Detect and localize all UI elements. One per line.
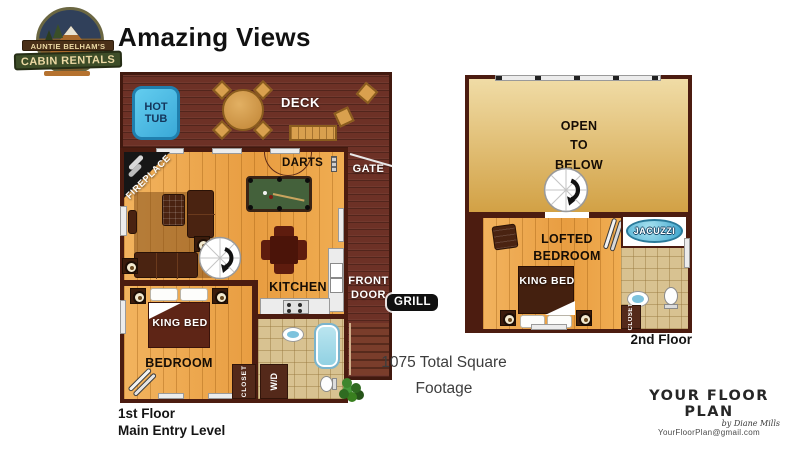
pool-pocket-icon bbox=[248, 205, 253, 210]
cabin-rentals-logo: AUNTIE BELHAM'S CABIN RENTALS bbox=[14, 5, 120, 87]
bed-blanket: KING BED bbox=[148, 302, 210, 348]
nightstand bbox=[576, 310, 592, 326]
deck-right-strip: GATE FRONT DOOR bbox=[345, 147, 392, 380]
spiral-staircase bbox=[198, 236, 242, 280]
logo-snowcap-icon bbox=[64, 26, 78, 35]
side-table bbox=[122, 258, 138, 274]
sofa bbox=[134, 252, 198, 278]
pool-pocket-icon bbox=[277, 177, 282, 182]
front-door-label: FRONT DOOR bbox=[348, 275, 389, 303]
grill-badge: GRILL bbox=[387, 294, 438, 311]
jacuzzi-room: JACUZZI bbox=[621, 215, 688, 248]
closet: CLOSET bbox=[232, 364, 256, 399]
pool-pocket-icon bbox=[248, 178, 253, 183]
interior-wall bbox=[469, 218, 483, 329]
window bbox=[120, 300, 126, 334]
watermark-email: YourFloorPlan@gmail.com bbox=[626, 428, 792, 437]
bathroom-sink-icon bbox=[282, 327, 304, 342]
kitchen-label: KITCHEN bbox=[258, 280, 338, 294]
floor2-caption: 2nd Floor bbox=[588, 332, 692, 347]
wall-tv-icon bbox=[120, 206, 127, 236]
logo-ribbon-icon bbox=[44, 71, 90, 76]
jacuzzi-icon: JACUZZI bbox=[626, 219, 683, 243]
stove-icon bbox=[283, 300, 309, 314]
logo-tree-icon bbox=[53, 24, 63, 38]
total-square-footage: 1075 Total Square Footage bbox=[368, 350, 520, 401]
kitchen-sink-icon bbox=[330, 278, 343, 293]
closet-label: CLOSET bbox=[628, 303, 634, 330]
king-bed: KING BED bbox=[148, 286, 210, 348]
jacuzzi-label: JACUZZI bbox=[634, 226, 676, 236]
king-bed: KING BED bbox=[518, 266, 574, 328]
lofted-bedroom-label: LOFTED BEDROOM bbox=[507, 231, 627, 265]
sofa-cushion-line bbox=[188, 214, 215, 215]
deck-chair bbox=[356, 82, 379, 105]
hot-tub-label: HOT TUB bbox=[139, 101, 173, 125]
nightstand bbox=[130, 288, 146, 304]
bed-blanket: KING BED bbox=[518, 266, 574, 314]
window bbox=[208, 393, 234, 399]
watermark-byline: by Diane Mills bbox=[626, 419, 792, 428]
dining-table-top bbox=[270, 236, 298, 264]
king-bed-label: KING BED bbox=[519, 275, 575, 289]
nightstand bbox=[212, 288, 228, 304]
lamp-icon bbox=[503, 313, 516, 326]
washer-dryer: W/D bbox=[260, 364, 288, 399]
floor1-caption: 1st Floor Main Entry Level bbox=[118, 406, 298, 440]
watermark: YOUR FLOOR PLAN by Diane Mills YourFloor… bbox=[626, 388, 792, 437]
logo-banner-top: AUNTIE BELHAM'S bbox=[22, 40, 114, 51]
sectional-sofa-corner bbox=[187, 190, 214, 238]
window bbox=[158, 393, 184, 399]
pool-pocket-icon bbox=[305, 178, 310, 183]
armchair bbox=[162, 194, 185, 226]
window-band bbox=[495, 75, 661, 81]
pool-pocket-icon bbox=[305, 205, 310, 210]
floor1-plan: HOT TUB DECK GATE FRONT DOOR bbox=[120, 72, 392, 403]
watermark-title: YOUR FLOOR PLAN bbox=[626, 388, 792, 420]
lamp-icon bbox=[579, 313, 592, 326]
floor2-plan: OPEN TO BELOW LOFTED BEDROO bbox=[465, 75, 692, 333]
logo-banner-bottom: CABIN RENTALS bbox=[14, 51, 122, 71]
deck-bench bbox=[289, 125, 337, 141]
floor1-interior: FIREPLACE DARTS bbox=[120, 148, 348, 403]
floor1-caption-line2: Main Entry Level bbox=[118, 423, 298, 440]
nightstand bbox=[500, 310, 516, 326]
floor1-caption-line1: 1st Floor bbox=[118, 406, 298, 423]
pool-ball-icon bbox=[269, 195, 273, 199]
front-door-opening bbox=[338, 208, 344, 242]
page-title: Amazing Views bbox=[118, 22, 311, 53]
tv-console bbox=[128, 210, 137, 234]
lamp-icon bbox=[133, 291, 146, 304]
closet: CLOSET bbox=[621, 305, 641, 329]
pillow-icon bbox=[180, 288, 208, 301]
window bbox=[212, 148, 242, 154]
cue-stick-icon bbox=[273, 193, 305, 202]
blanket-fold-icon bbox=[545, 301, 575, 315]
floorplan-page: AUNTIE BELHAM'S CABIN RENTALS Amazing Vi… bbox=[0, 0, 799, 466]
cue-ball-icon bbox=[263, 191, 267, 195]
king-bed-label: KING BED bbox=[149, 317, 211, 331]
window bbox=[531, 324, 567, 330]
pool-table bbox=[246, 176, 312, 212]
gate-label: GATE bbox=[348, 163, 389, 175]
closet-label: CLOSET bbox=[241, 365, 248, 397]
kitchen-counter bbox=[328, 248, 344, 312]
lamp-icon bbox=[215, 291, 228, 304]
pillow-icon bbox=[150, 288, 178, 301]
dartboard-icon bbox=[331, 156, 337, 172]
pool-pocket-icon bbox=[277, 206, 282, 211]
kitchen-sink-icon bbox=[330, 263, 343, 278]
washer-dryer-label: W/D bbox=[269, 373, 279, 391]
spiral-staircase bbox=[543, 167, 589, 213]
dining-table bbox=[261, 226, 307, 274]
sofa-cushion-line bbox=[156, 253, 157, 279]
toilet-icon bbox=[662, 287, 682, 311]
lamp-icon bbox=[125, 261, 138, 274]
window bbox=[684, 238, 690, 268]
hot-tub: HOT TUB bbox=[132, 86, 180, 140]
sofa-cushion-line bbox=[177, 253, 178, 279]
deck-area: HOT TUB DECK bbox=[120, 72, 392, 150]
plant-icon bbox=[336, 376, 362, 406]
deck-label: DECK bbox=[281, 95, 320, 110]
darts-label: DARTS bbox=[282, 157, 323, 169]
bathtub-icon bbox=[314, 323, 340, 369]
